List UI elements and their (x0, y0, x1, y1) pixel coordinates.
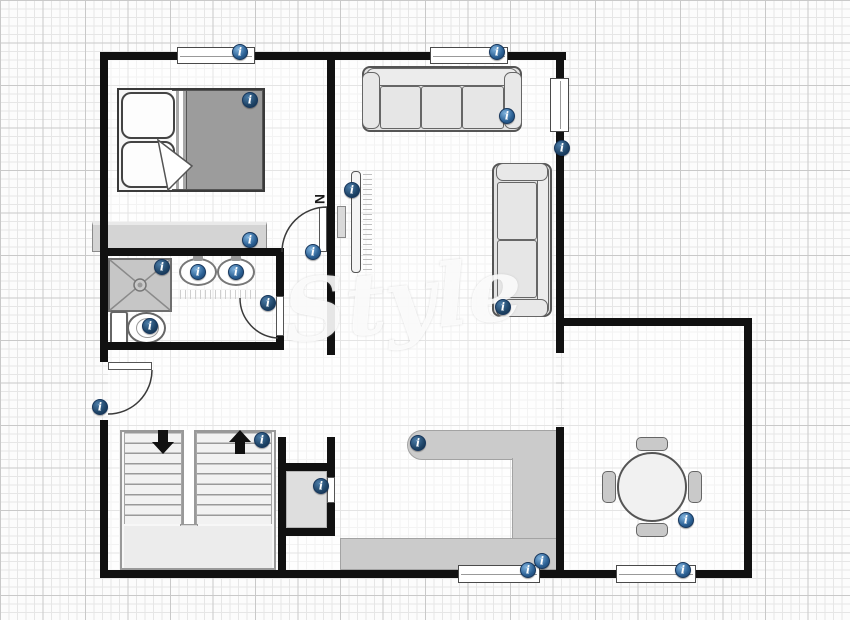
stairs-left-flight (124, 432, 182, 524)
wall-bedroom-inner (327, 52, 335, 355)
sofa-right-arm-top (496, 163, 548, 181)
info-icon: i (319, 480, 323, 491)
stairs-landing (124, 526, 272, 568)
wall-dining-right (744, 318, 752, 578)
wall-bedroom-bottom (100, 248, 278, 256)
bathroom-door-leaf (276, 296, 284, 336)
bed-pillow-top (121, 92, 175, 139)
wall-closet-bottom (278, 528, 335, 536)
info-icon: i (266, 297, 270, 308)
tv-wall-mount (337, 206, 346, 238)
wall-closet-left (278, 437, 286, 578)
dining-chair-top (636, 437, 668, 451)
toilet-tank (110, 311, 128, 345)
floor-plan-canvas: N Style iiiiiiiiiiiiiiiiiiiiii (0, 0, 850, 620)
info-icon: i (248, 94, 252, 105)
sofa-right-backrest (537, 167, 549, 313)
info-icon: i (526, 564, 530, 575)
dining-table (617, 452, 687, 522)
marker-sink-right-info[interactable]: i (228, 264, 244, 280)
sofa-top-cushion-2 (421, 86, 462, 129)
marker-kitchen-window-info[interactable]: i (520, 562, 536, 578)
marker-kitchen-counter-info[interactable]: i (410, 435, 426, 451)
dining-chair-bottom (636, 523, 668, 537)
info-icon: i (260, 434, 264, 445)
info-icon: i (234, 266, 238, 277)
marker-kitchen-info[interactable]: i (534, 553, 550, 569)
marker-dresser-info[interactable]: i (242, 232, 258, 248)
wall-left-upper (100, 52, 108, 362)
info-icon: i (248, 234, 252, 245)
sofa-top-cushion-3 (462, 86, 504, 129)
wall-kitchen-dining (556, 427, 564, 578)
info-icon: i (148, 320, 152, 331)
window-right (550, 78, 569, 132)
wall-bathroom-right-upper (276, 248, 284, 296)
info-icon: i (160, 261, 164, 272)
dining-chair-right (688, 471, 702, 503)
stairs-center-rail (182, 430, 196, 530)
marker-toilet-info[interactable]: i (142, 318, 158, 334)
info-icon: i (416, 437, 420, 448)
info-icon: i (505, 110, 509, 121)
marker-sofa-right-info[interactable]: i (495, 299, 511, 315)
marker-sink-left-info[interactable]: i (190, 264, 206, 280)
entry-door-leaf (108, 362, 152, 370)
info-icon: i (238, 46, 242, 57)
tv-hatch (363, 174, 372, 271)
info-icon: i (681, 564, 685, 575)
sofa-top-arm-left (362, 72, 380, 129)
marker-window-bedroom-info[interactable]: i (232, 44, 248, 60)
marker-dining-table-info[interactable]: i (678, 512, 694, 528)
closet-door-leaf (327, 477, 335, 503)
info-icon: i (560, 142, 564, 153)
marker-closet-info[interactable]: i (313, 478, 329, 494)
wall-dining-top (556, 318, 752, 326)
bed-pillow-bottom (121, 141, 175, 188)
info-icon: i (684, 514, 688, 525)
info-icon: i (98, 401, 102, 412)
marker-window-living-info[interactable]: i (489, 44, 505, 60)
info-icon: i (196, 266, 200, 277)
marker-tv-info[interactable]: i (344, 182, 360, 198)
wall-left-lower (100, 420, 108, 578)
sofa-top-cushion-1 (380, 86, 421, 129)
marker-bed-info[interactable]: i (242, 92, 258, 108)
info-icon: i (311, 246, 315, 257)
kitchen-counter-top (407, 430, 560, 460)
marker-sofa-top-info[interactable]: i (499, 108, 515, 124)
dining-chair-left (602, 471, 616, 503)
wall-closet-top (278, 463, 335, 471)
marker-stairs-info[interactable]: i (254, 432, 270, 448)
marker-bathroom-door-info[interactable]: i (260, 295, 276, 311)
info-icon: i (350, 184, 354, 195)
info-icon: i (501, 301, 505, 312)
wall-bathroom-bottom (100, 342, 284, 350)
marker-shower-info[interactable]: i (154, 259, 170, 275)
info-icon: i (495, 46, 499, 57)
marker-bedroom-door-info[interactable]: i (305, 244, 321, 260)
marker-entry-door-info[interactable]: i (92, 399, 108, 415)
sofa-top-backrest (366, 68, 518, 86)
kitchen-counter-right (512, 458, 560, 540)
sink-counter-hatch (180, 290, 256, 299)
info-icon: i (540, 555, 544, 566)
sofa-right-cushion-2 (497, 240, 537, 298)
sofa-right-cushion-1 (497, 182, 537, 240)
north-indicator: N (312, 194, 328, 214)
marker-dining-window-info[interactable]: i (675, 562, 691, 578)
marker-window-right-info[interactable]: i (554, 140, 570, 156)
